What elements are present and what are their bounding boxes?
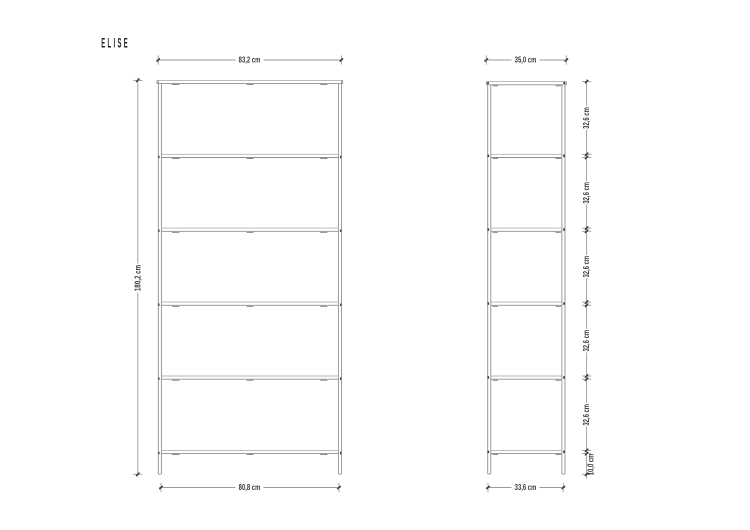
svg-text:32,6 cm: 32,6 cm bbox=[583, 107, 591, 129]
svg-text:80,8 cm: 80,8 cm bbox=[239, 484, 261, 492]
svg-text:32,6 cm: 32,6 cm bbox=[583, 330, 591, 352]
svg-text:32,6 cm: 32,6 cm bbox=[583, 182, 591, 204]
svg-text:83,2 cm: 83,2 cm bbox=[239, 57, 261, 65]
svg-text:35,0 cm: 35,0 cm bbox=[515, 57, 537, 65]
svg-text:180,2 cm: 180,2 cm bbox=[134, 265, 143, 291]
svg-text:32,6 cm: 32,6 cm bbox=[583, 256, 591, 278]
svg-text:32,6 cm: 32,6 cm bbox=[583, 404, 591, 426]
svg-text:10,0 cm: 10,0 cm bbox=[588, 454, 596, 476]
svg-text:33,6 cm: 33,6 cm bbox=[515, 484, 537, 492]
svg-text:ELISE: ELISE bbox=[101, 36, 130, 52]
